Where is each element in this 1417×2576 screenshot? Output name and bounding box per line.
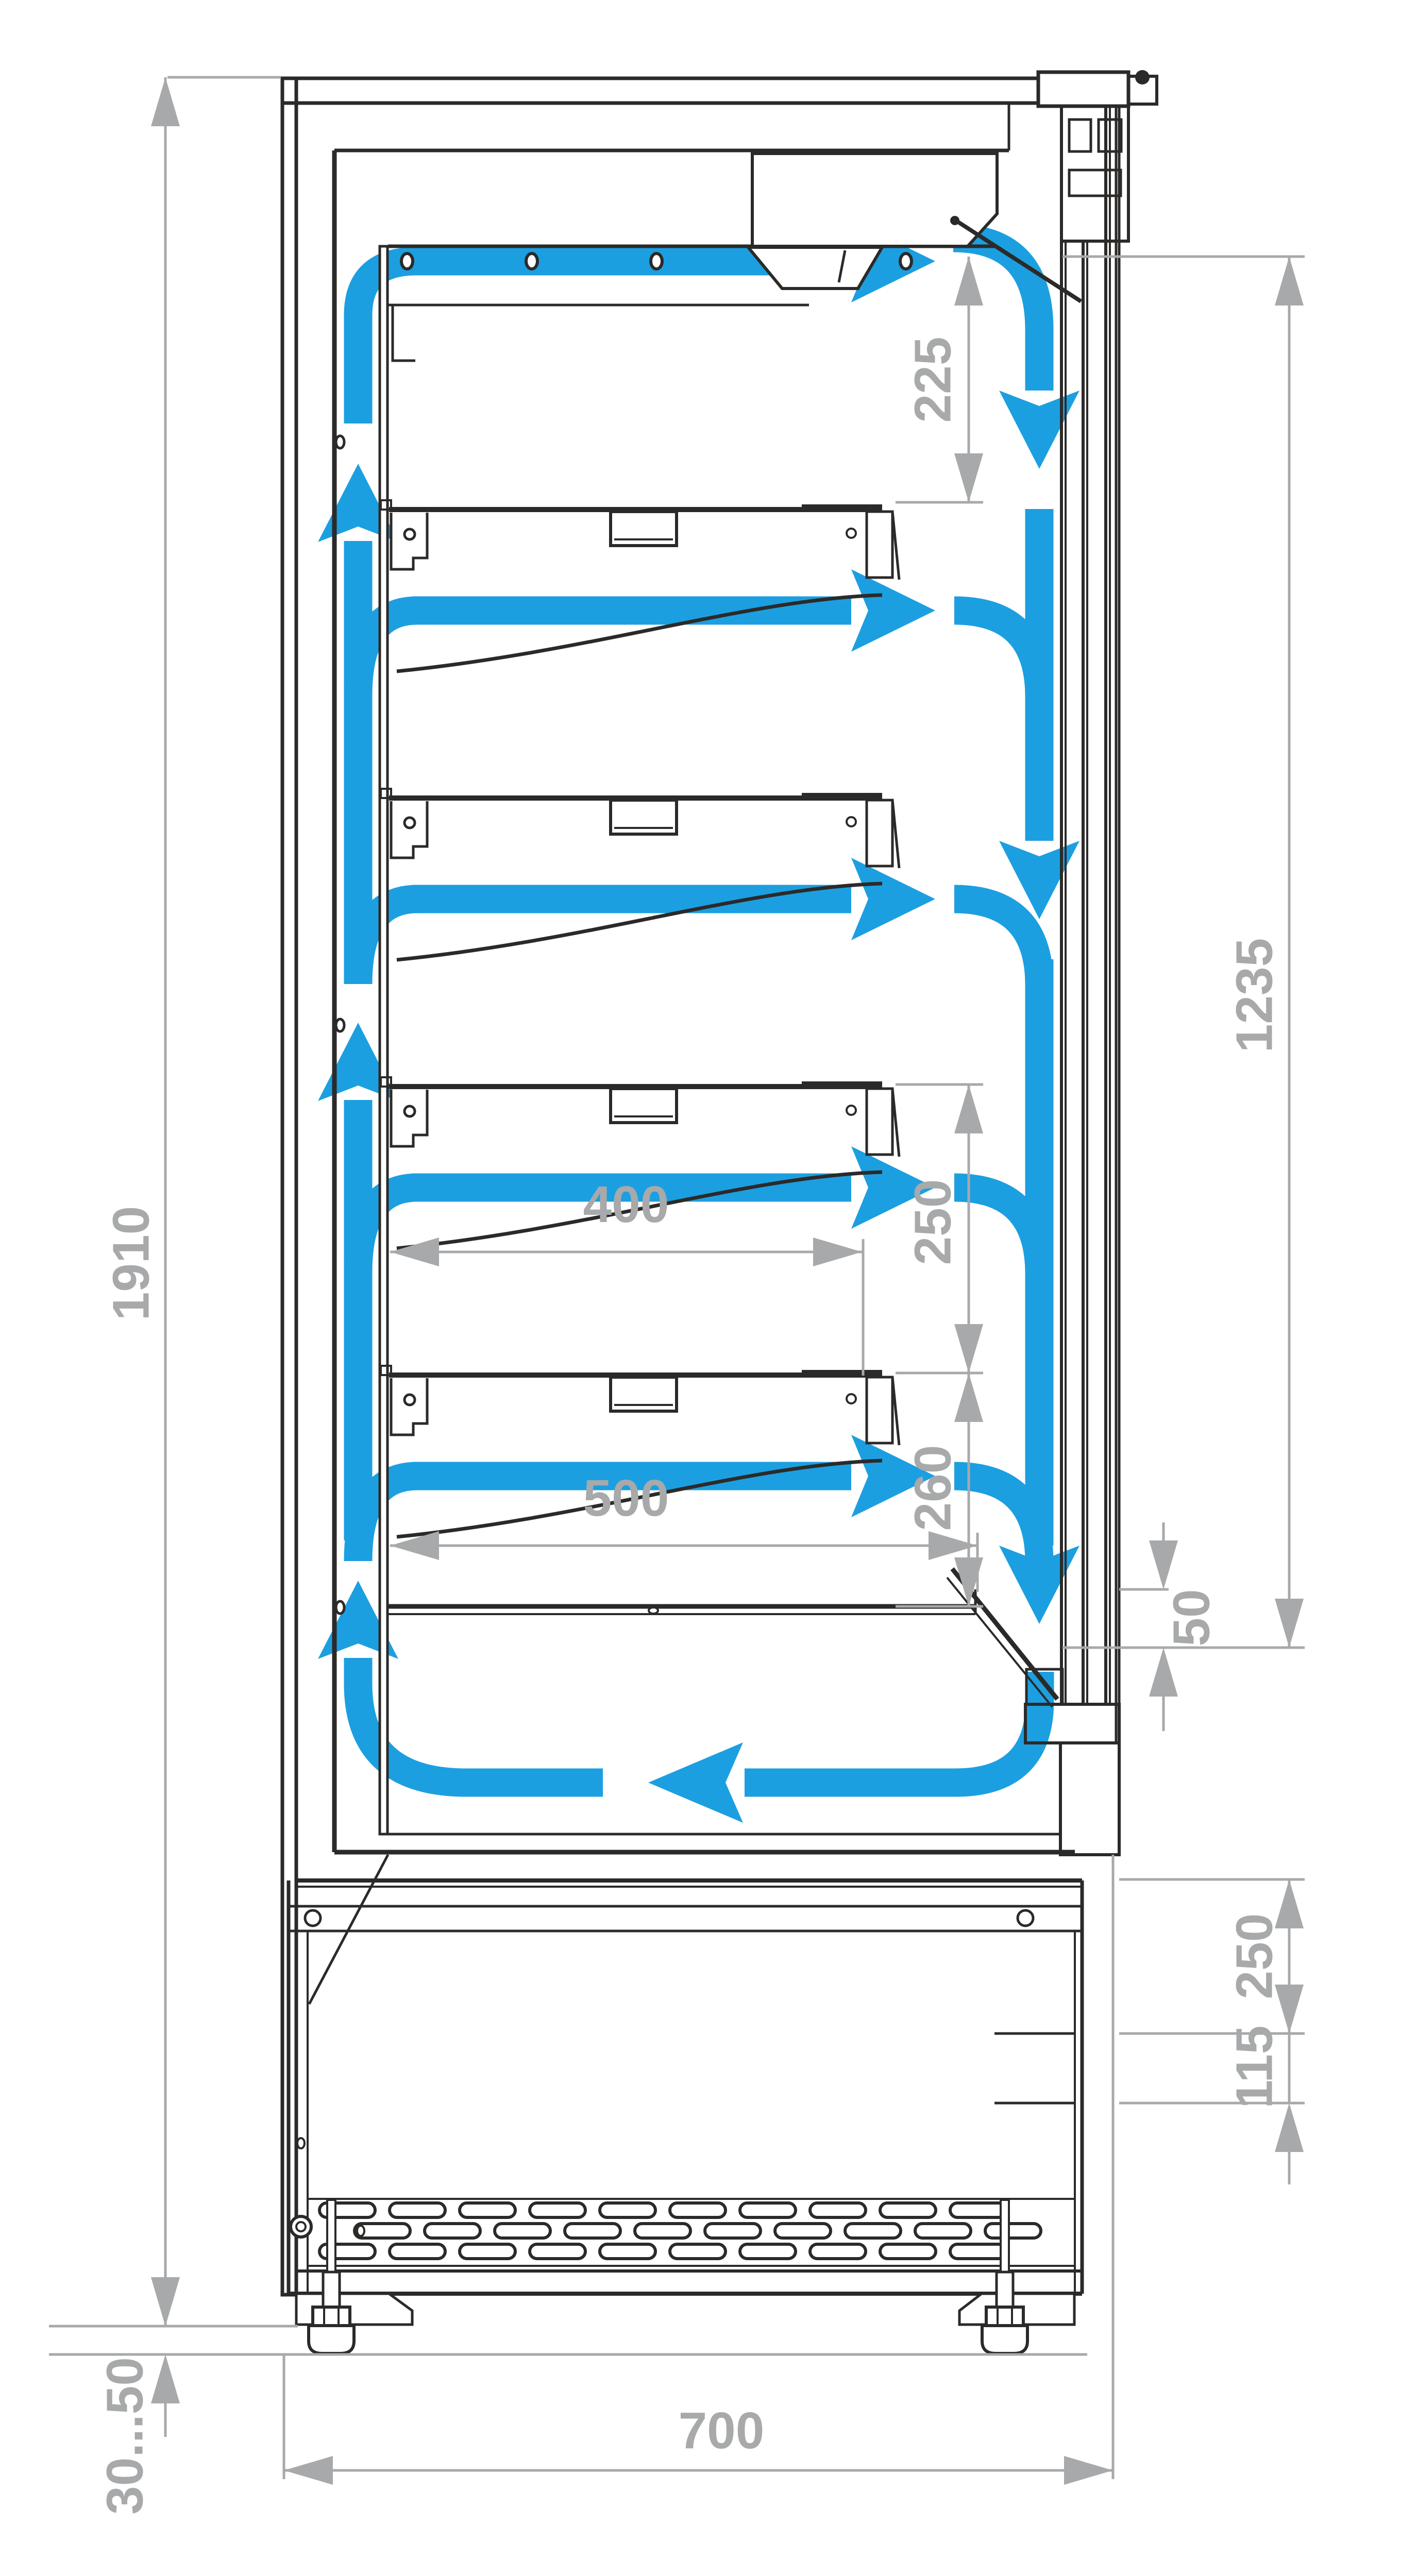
panel-hole	[336, 1601, 344, 1614]
panel-hole	[336, 1019, 344, 1031]
base-screw-left	[305, 1910, 320, 1926]
dim-label-bottom-gap: 260	[904, 1445, 961, 1531]
base-screw-right	[1018, 1910, 1033, 1926]
diagram-page: 1910 225 250 260 1235	[0, 0, 1417, 2576]
down-arrowhead-top	[999, 391, 1079, 469]
base-diagonal-brace	[309, 1855, 388, 2004]
dim-label-overall-height: 1910	[102, 1206, 160, 1320]
dim-700: 700	[284, 2402, 1113, 2485]
duct-hole	[526, 253, 537, 269]
dim-label-intake-gap: 50	[1162, 1589, 1220, 1646]
return-arrowhead-left	[648, 1742, 743, 1823]
ventilation-grille	[308, 2199, 1075, 2266]
front-kick-panel	[1060, 1743, 1119, 1855]
dim-label-air-curtain: 1235	[1225, 938, 1283, 1053]
duct-hole	[651, 253, 662, 269]
return-intake-bend	[745, 1672, 1040, 1783]
header-screw	[1135, 70, 1150, 84]
dim-label-overall-depth: 700	[679, 2402, 765, 2460]
panel-hole	[336, 436, 344, 448]
rear-riser-bottom-bend	[358, 1658, 603, 1783]
dim-250-base: 250	[1225, 1879, 1304, 2033]
dim-1910: 1910	[102, 77, 180, 2326]
shelf-1	[381, 500, 899, 671]
shelf-2	[381, 789, 899, 960]
header-hinge-plate	[1069, 170, 1121, 196]
sensor-cover	[748, 247, 882, 289]
foot-left	[309, 2200, 354, 2353]
side-screw-big-inner	[296, 2222, 306, 2231]
shelf-jet-1	[358, 569, 1039, 697]
evaporator-housing	[752, 154, 997, 246]
door-header-cap	[1038, 72, 1128, 106]
shelf-jet-2	[358, 858, 1039, 985]
dim-250-shelf: 250	[904, 1084, 983, 1373]
dim-225: 225	[904, 257, 983, 502]
top-cap	[282, 78, 1038, 103]
dim-label-foot-range: 30...50	[96, 2357, 154, 2515]
duct-hole	[401, 253, 413, 269]
dim-label-shelf-depth: 400	[583, 1176, 669, 1233]
deck-hole	[649, 1607, 658, 1614]
vane-pivot	[950, 216, 959, 225]
top-duct-band	[358, 261, 851, 423]
dim-115: 115	[1225, 2025, 1304, 2184]
duct-hole	[900, 253, 912, 269]
dim-foot-range: 30...50	[96, 2246, 180, 2515]
dim-1235: 1235	[1225, 257, 1304, 1648]
dim-label-machine-lower: 115	[1225, 2025, 1283, 2108]
cabinet-section-diagram: 1910 225 250 260 1235	[0, 0, 1417, 2576]
dim-label-machine-upper: 250	[1225, 1913, 1283, 1999]
lamp-bracket	[393, 305, 415, 361]
curtain-top-curve	[953, 238, 1039, 391]
dim-label-shelf-pitch: 250	[904, 1179, 961, 1265]
dim-label-top-gap: 225	[904, 337, 961, 423]
side-hole-a	[357, 2226, 364, 2236]
dim-50: 50	[1149, 1522, 1220, 1731]
side-hole-b	[297, 2138, 305, 2148]
dim-label-deck-depth: 500	[583, 1469, 669, 1527]
glass-door[interactable]	[1061, 106, 1119, 1743]
header-block-a	[1069, 120, 1091, 151]
rear-perforated-panel	[380, 246, 387, 1834]
